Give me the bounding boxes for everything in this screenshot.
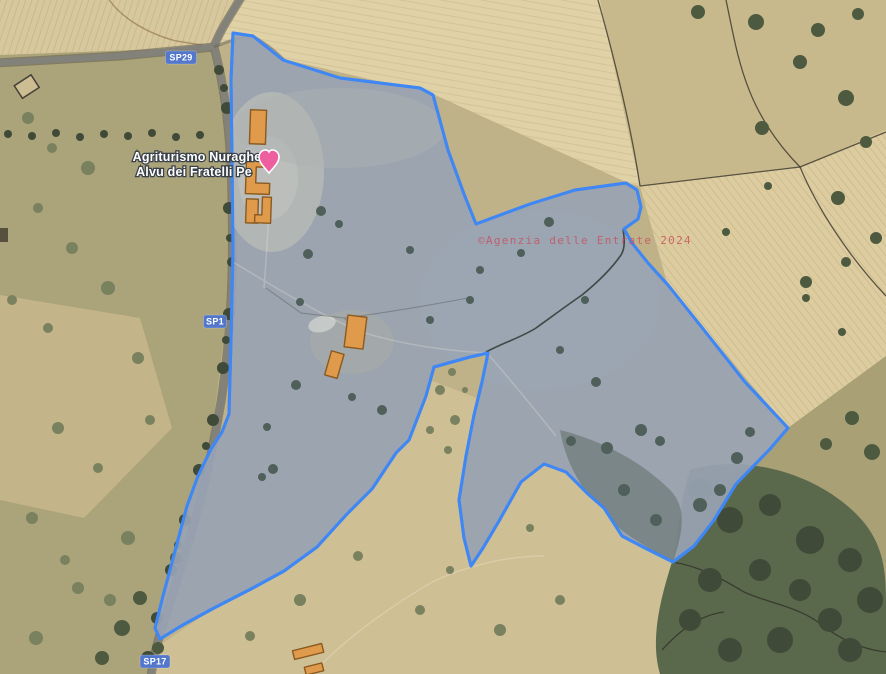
watermark-attribution: ©Agenzia delle Entrate 2024: [478, 234, 692, 247]
road-badge-sp17-label: SP17: [143, 657, 166, 667]
road-badge-sp17: SP17: [140, 655, 170, 668]
building-footprint: [249, 110, 266, 145]
road-badge-sp29-label: SP29: [169, 53, 192, 63]
place-label-line2[interactable]: Alvu dei Fratelli Pe: [136, 165, 252, 179]
satellite-map-viewport[interactable]: Agriturismo Nuraghe Alvu dei Fratelli Pe…: [0, 0, 886, 674]
road-badge-sp1: SP1: [204, 315, 227, 328]
satellite-map-canvas[interactable]: Agriturismo Nuraghe Alvu dei Fratelli Pe…: [0, 0, 886, 674]
place-label-line1[interactable]: Agriturismo Nuraghe: [133, 150, 262, 164]
building-footprint: [344, 315, 367, 349]
small-structure: [0, 228, 8, 242]
road-badge-sp1-label: SP1: [206, 317, 224, 327]
road-badge-sp29: SP29: [166, 51, 197, 64]
place-label-agriturismo[interactable]: Agriturismo Nuraghe Alvu dei Fratelli Pe: [133, 150, 262, 179]
